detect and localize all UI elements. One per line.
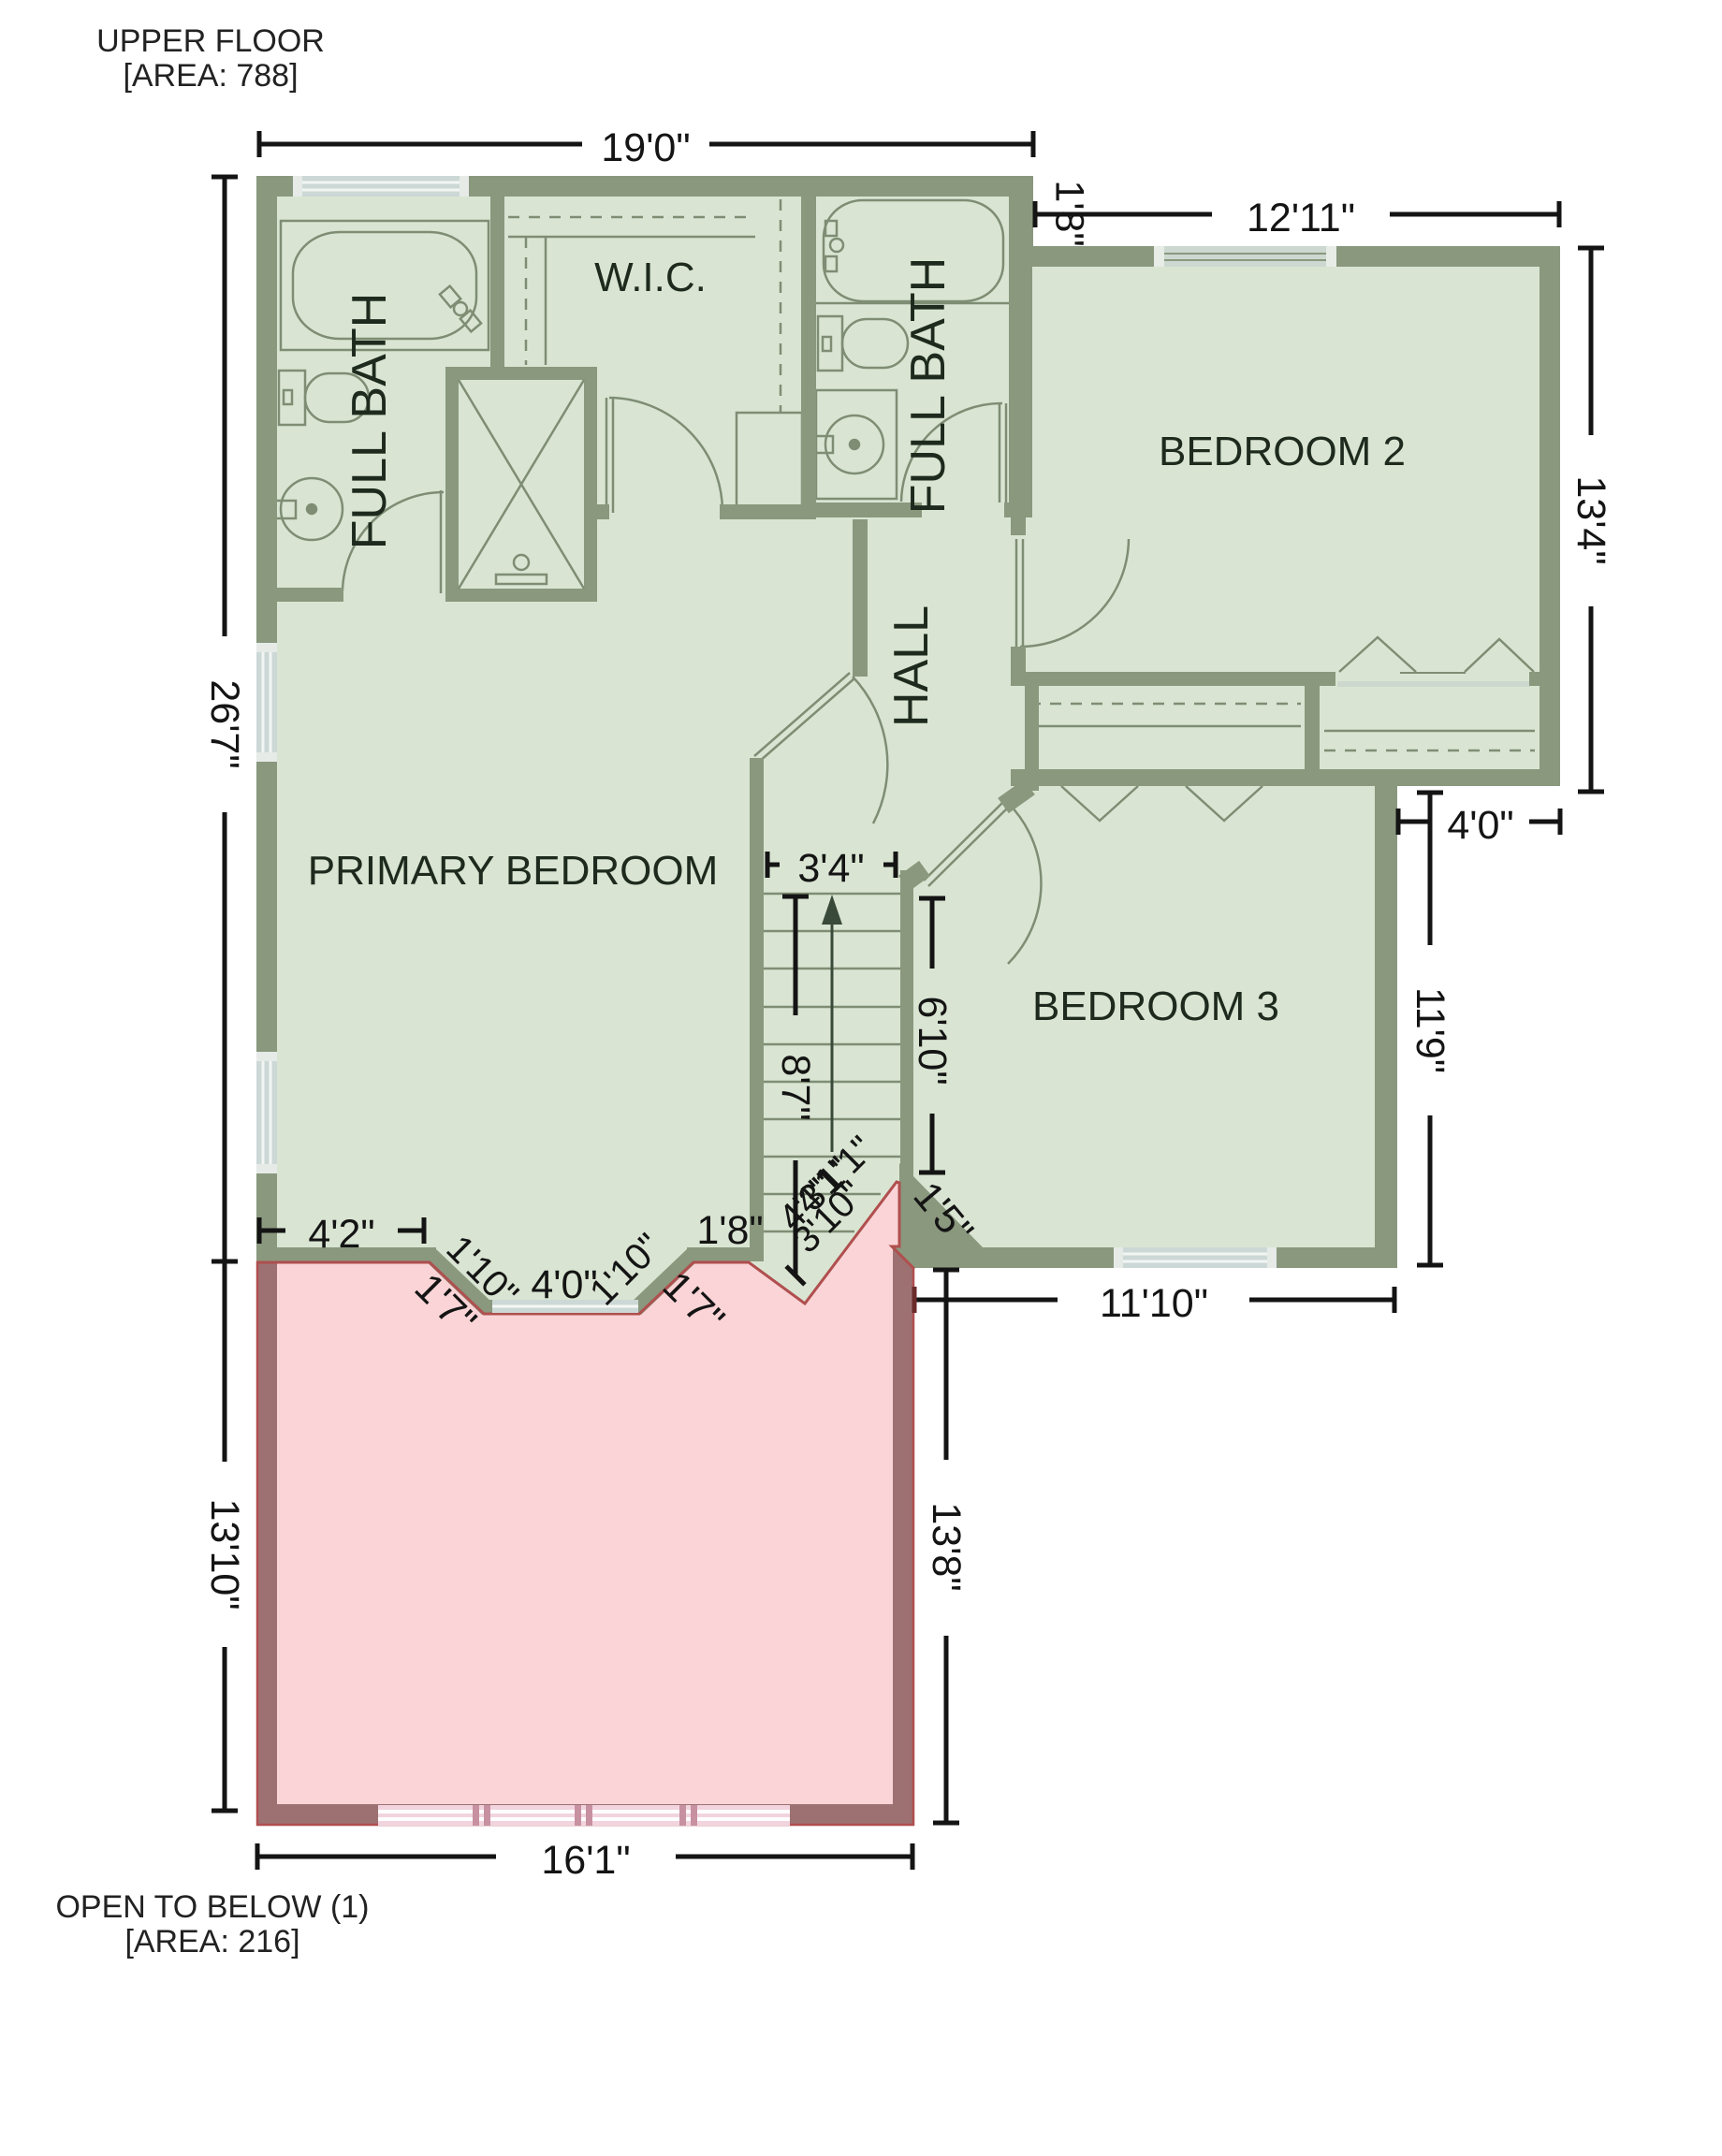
svg-text:BEDROOM 3: BEDROOM 3 <box>1032 983 1279 1029</box>
svg-text:PRIMARY BEDROOM: PRIMARY BEDROOM <box>308 848 718 894</box>
svg-text:19'0": 19'0" <box>601 125 690 170</box>
svg-text:13'4": 13'4" <box>1569 475 1613 564</box>
svg-text:11'10": 11'10" <box>1100 1281 1208 1326</box>
svg-text:[AREA: 216]: [AREA: 216] <box>124 1924 299 1959</box>
svg-text:13'8": 13'8" <box>924 1502 969 1591</box>
svg-text:4'0": 4'0" <box>1447 803 1513 848</box>
svg-text:UPPER FLOOR: UPPER FLOOR <box>96 23 325 59</box>
svg-text:6'10": 6'10" <box>910 996 955 1085</box>
svg-text:1'8": 1'8" <box>1047 180 1092 246</box>
svg-text:FULL BATH: FULL BATH <box>901 257 956 515</box>
svg-text:W.I.C.: W.I.C. <box>594 255 707 300</box>
svg-text:[AREA: 788]: [AREA: 788] <box>123 58 298 94</box>
svg-text:13'10": 13'10" <box>202 1498 247 1610</box>
svg-text:26'7": 26'7" <box>202 679 247 768</box>
svg-text:8'7": 8'7" <box>773 1054 818 1120</box>
svg-text:3'4": 3'4" <box>797 846 864 891</box>
svg-text:11'9": 11'9" <box>1408 987 1452 1073</box>
svg-text:16'1": 16'1" <box>541 1838 630 1883</box>
svg-text:BEDROOM 2: BEDROOM 2 <box>1159 429 1406 474</box>
svg-text:12'11": 12'11" <box>1247 196 1355 240</box>
svg-text:OPEN TO BELOW (1): OPEN TO BELOW (1) <box>55 1889 369 1925</box>
svg-text:4'2": 4'2" <box>308 1212 374 1257</box>
svg-text:HALL: HALL <box>884 605 939 727</box>
svg-text:1'8": 1'8" <box>696 1208 763 1253</box>
svg-text:FULL BATH: FULL BATH <box>343 293 397 550</box>
